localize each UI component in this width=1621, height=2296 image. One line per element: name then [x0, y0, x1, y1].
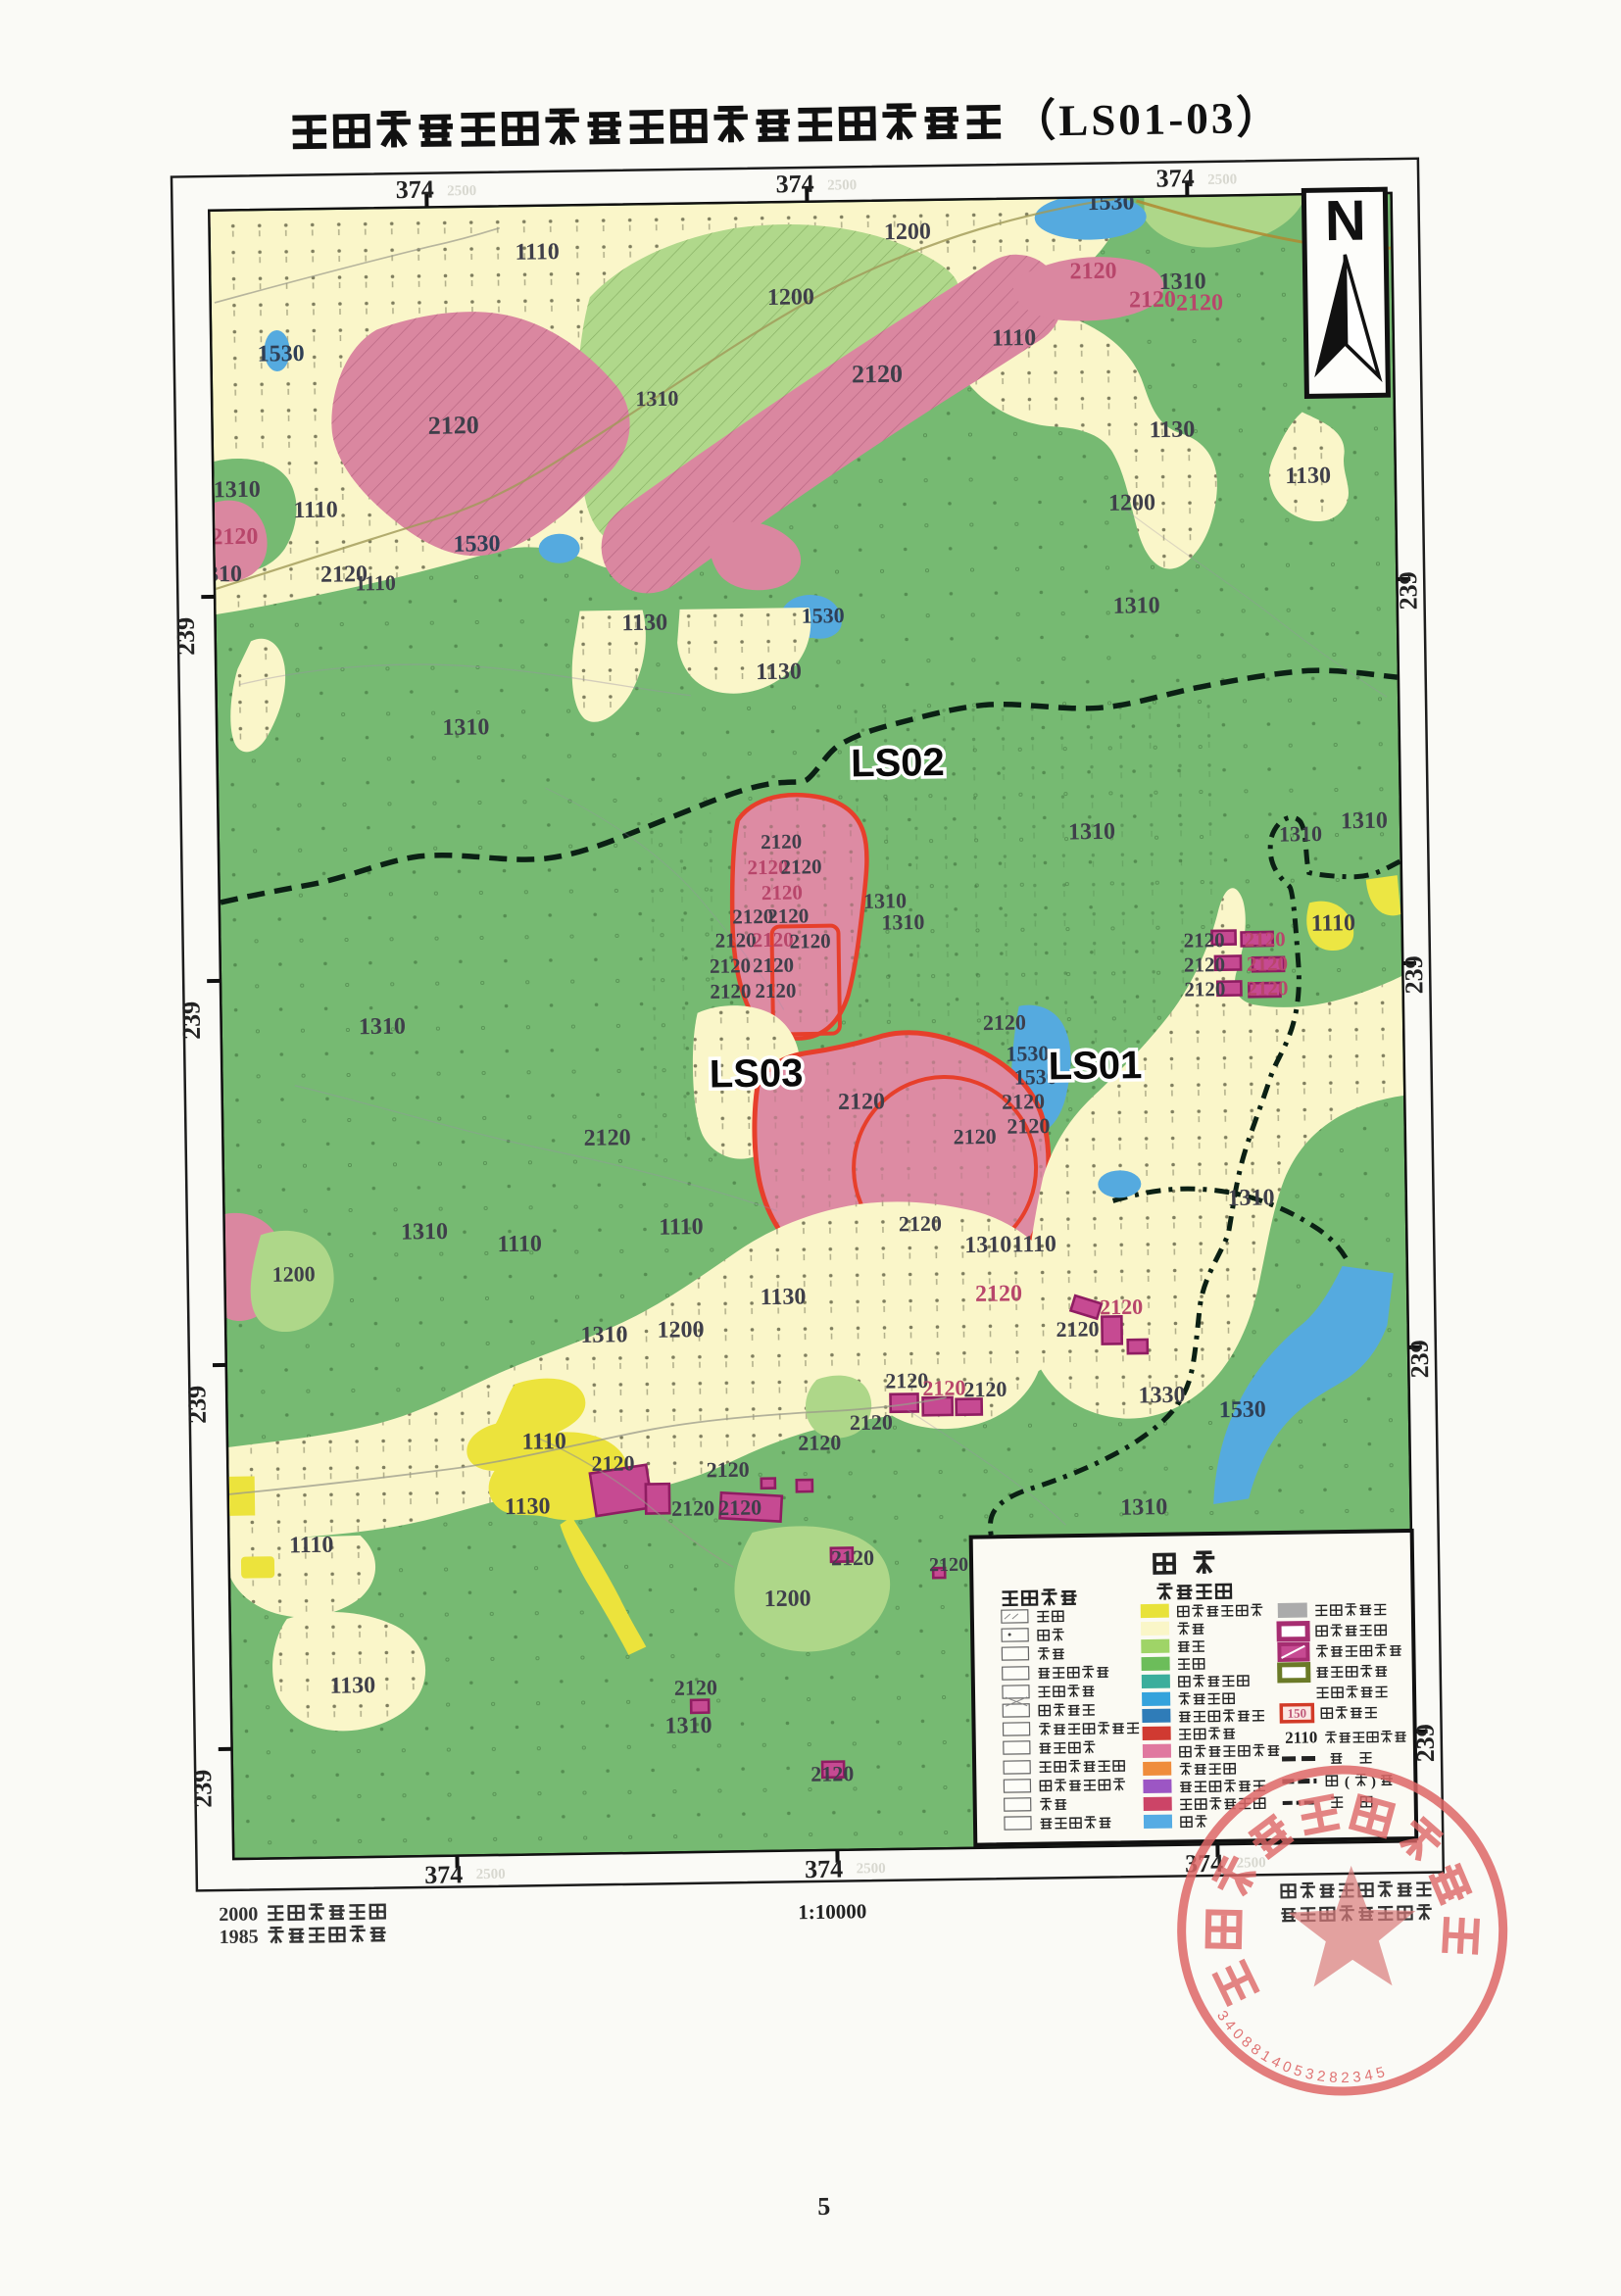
svg-text:2500: 2500	[827, 177, 857, 193]
svg-text:1:10000: 1:10000	[798, 1899, 866, 1924]
svg-text:1310: 1310	[1112, 593, 1159, 619]
svg-text:2120: 2120	[1007, 1113, 1050, 1139]
svg-text:LS02: LS02	[851, 741, 945, 785]
svg-text:1530: 1530	[1219, 1397, 1266, 1424]
svg-text:239: 239	[176, 1001, 206, 1040]
svg-text:1310: 1310	[1120, 1494, 1167, 1521]
svg-text:1530: 1530	[453, 531, 500, 558]
svg-text:2120: 2120	[591, 1450, 634, 1476]
svg-text:2120: 2120	[755, 979, 796, 1003]
svg-text:2120: 2120	[211, 524, 258, 551]
svg-text:1310: 1310	[664, 1713, 712, 1739]
svg-text:1130: 1130	[760, 1285, 806, 1311]
svg-text:1110: 1110	[515, 239, 560, 266]
svg-text:2120: 2120	[953, 1124, 996, 1149]
svg-text:2120: 2120	[761, 880, 803, 904]
svg-text:2120: 2120	[1176, 290, 1223, 317]
svg-text:239: 239	[182, 1386, 212, 1424]
svg-text:2500: 2500	[857, 1861, 886, 1877]
svg-text:239: 239	[172, 617, 201, 656]
svg-text:2500: 2500	[447, 183, 476, 199]
svg-text:1200: 1200	[767, 284, 814, 311]
svg-text:1310: 1310	[1279, 821, 1322, 847]
svg-text:2500: 2500	[1237, 1855, 1266, 1871]
svg-text:1130: 1130	[505, 1493, 551, 1520]
svg-text:1530: 1530	[802, 603, 845, 628]
svg-text:2120: 2120	[789, 929, 830, 953]
svg-text:2000: 2000	[219, 1903, 258, 1926]
svg-text:LS03: LS03	[710, 1051, 804, 1096]
svg-text:2120: 2120	[975, 1281, 1022, 1307]
svg-text:1310: 1310	[401, 1219, 448, 1246]
svg-text:1310: 1310	[964, 1232, 1011, 1258]
svg-text:239: 239	[1394, 571, 1423, 610]
svg-text:2120: 2120	[1247, 976, 1288, 1001]
svg-text:2120: 2120	[761, 829, 802, 854]
svg-text:1530: 1530	[257, 341, 304, 367]
svg-text:2120: 2120	[714, 928, 756, 953]
svg-text:2120: 2120	[922, 1375, 965, 1400]
svg-text:2120: 2120	[674, 1675, 717, 1700]
svg-text:2120: 2120	[963, 1377, 1007, 1402]
svg-text:1310: 1310	[214, 477, 261, 504]
svg-text:1200: 1200	[657, 1317, 704, 1343]
svg-text:374: 374	[1155, 164, 1194, 193]
svg-text:1130: 1130	[621, 611, 667, 637]
svg-text:1330: 1330	[1138, 1383, 1185, 1409]
svg-text:2120: 2120	[752, 928, 793, 953]
svg-text:2120: 2120	[1056, 1316, 1099, 1342]
svg-text:2500: 2500	[476, 1867, 506, 1882]
svg-text:239: 239	[1400, 955, 1429, 994]
svg-text:2120: 2120	[671, 1495, 714, 1521]
svg-text:1110: 1110	[992, 325, 1037, 352]
svg-text:N: N	[1324, 189, 1366, 254]
svg-text:1200: 1200	[884, 219, 931, 245]
svg-text:2120: 2120	[1184, 953, 1225, 977]
svg-text:374: 374	[805, 1855, 843, 1884]
svg-text:2120: 2120	[1069, 259, 1116, 285]
svg-text:2120: 2120	[753, 953, 794, 978]
svg-text:2120: 2120	[838, 1089, 885, 1115]
svg-text:2120: 2120	[428, 411, 479, 440]
svg-text:1110: 1110	[355, 570, 396, 596]
svg-text:1985: 1985	[219, 1926, 258, 1948]
svg-text:(: (	[1345, 1775, 1350, 1790]
svg-text:2120: 2120	[780, 855, 821, 879]
svg-text:2120: 2120	[1100, 1295, 1143, 1320]
svg-text:1200: 1200	[271, 1261, 315, 1287]
svg-text:1110: 1110	[497, 1231, 542, 1257]
svg-text:2120: 2120	[767, 904, 809, 928]
svg-text:2120: 2120	[1244, 927, 1285, 952]
svg-text:2500: 2500	[1207, 171, 1237, 187]
svg-text:1110: 1110	[1011, 1232, 1056, 1258]
svg-text:1130: 1130	[756, 659, 802, 685]
svg-text:2120: 2120	[1002, 1089, 1045, 1114]
svg-text:2120: 2120	[850, 1410, 893, 1436]
svg-text:1310: 1310	[635, 386, 678, 412]
svg-text:2120: 2120	[718, 1494, 761, 1520]
svg-text:1110: 1110	[289, 1533, 334, 1559]
svg-text:2110: 2110	[1285, 1728, 1317, 1746]
svg-text:2120: 2120	[1247, 952, 1288, 976]
svg-text:150: 150	[1288, 1706, 1307, 1721]
svg-text:2120: 2120	[810, 1761, 854, 1786]
svg-text:1130: 1130	[1149, 417, 1195, 444]
svg-text:2120: 2120	[1129, 287, 1176, 314]
svg-text:1130: 1130	[329, 1673, 375, 1699]
svg-text:2120: 2120	[710, 979, 751, 1003]
svg-text:LS01: LS01	[1048, 1044, 1142, 1088]
svg-text:2120: 2120	[710, 953, 751, 978]
svg-text:2120: 2120	[852, 360, 903, 389]
svg-text:1200: 1200	[1108, 490, 1155, 516]
svg-text:5: 5	[817, 2192, 830, 2221]
svg-text:1130: 1130	[1285, 463, 1331, 489]
svg-text:1310: 1310	[580, 1322, 627, 1348]
svg-text:2120: 2120	[583, 1125, 630, 1151]
svg-text:1310: 1310	[442, 714, 489, 741]
svg-text:1530: 1530	[1006, 1041, 1049, 1066]
svg-text:2120: 2120	[1184, 977, 1225, 1001]
svg-text:374: 374	[424, 1860, 463, 1889]
svg-text:（LS01-03）: （LS01-03）	[1011, 93, 1284, 146]
svg-text:1310: 1310	[1227, 1185, 1274, 1211]
svg-text:1200: 1200	[763, 1586, 810, 1612]
svg-text:2120: 2120	[706, 1457, 749, 1483]
svg-text:1310: 1310	[881, 909, 924, 935]
svg-text:2120: 2120	[983, 1009, 1026, 1035]
svg-text:1310: 1310	[359, 1014, 406, 1041]
svg-text:2120: 2120	[899, 1211, 942, 1237]
svg-text:1310: 1310	[1341, 808, 1388, 835]
svg-text:2120: 2120	[929, 1554, 968, 1577]
svg-text:1110: 1110	[659, 1214, 704, 1241]
svg-text:1310: 1310	[1068, 819, 1115, 846]
svg-text:1110: 1110	[1311, 910, 1356, 937]
svg-text:1110: 1110	[293, 497, 338, 523]
svg-text:374: 374	[775, 170, 813, 199]
svg-text:239: 239	[188, 1770, 218, 1808]
svg-text:374: 374	[395, 175, 433, 205]
svg-text:239: 239	[1405, 1340, 1435, 1378]
svg-text:2120: 2120	[798, 1430, 841, 1455]
svg-text:1110: 1110	[521, 1429, 566, 1455]
svg-text:2120: 2120	[1183, 928, 1224, 953]
svg-text:2120: 2120	[831, 1545, 874, 1571]
